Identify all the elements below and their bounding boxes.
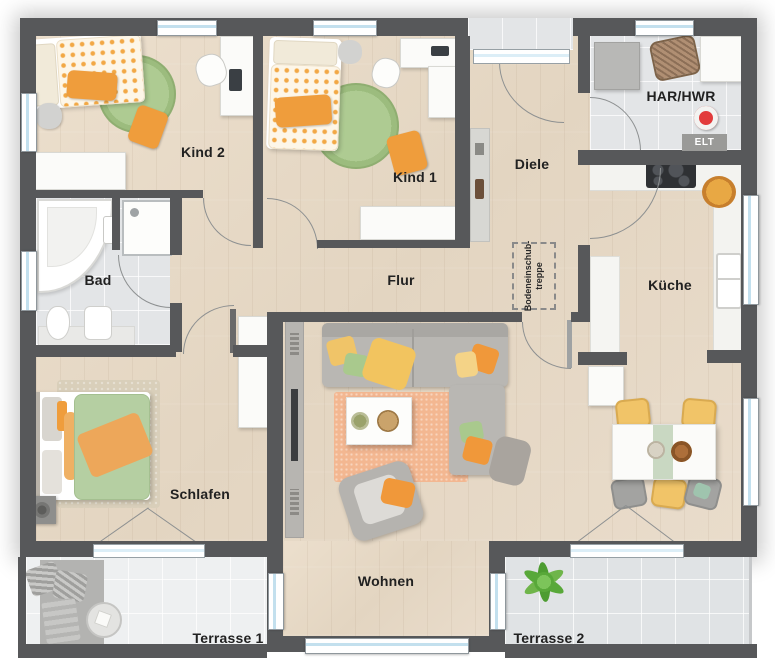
- decor: [94, 610, 112, 628]
- wall: [267, 312, 283, 541]
- monitor: [431, 46, 449, 56]
- wall: [233, 345, 267, 357]
- washing-machine: [594, 42, 640, 90]
- room-label-wohnen: Wohnen: [358, 573, 414, 589]
- room-label-diele: Diele: [515, 156, 549, 172]
- wardrobe-kind2: [28, 152, 126, 190]
- elt-panel: ELT: [682, 134, 727, 151]
- toilet: [46, 306, 70, 340]
- decor: [475, 143, 484, 155]
- room-label-kind1: Kind 1: [393, 169, 437, 185]
- window: [313, 20, 377, 36]
- wall: [267, 312, 522, 322]
- laptop: [229, 69, 242, 91]
- dining-chair: [610, 475, 649, 510]
- plant-center: [534, 572, 554, 592]
- elt-label: ELT: [695, 137, 715, 148]
- bucket: [694, 106, 718, 130]
- flowers: [647, 441, 665, 459]
- books: [290, 333, 299, 355]
- bowl: [671, 441, 692, 462]
- plant: [351, 412, 369, 430]
- wall: [18, 557, 26, 648]
- side-table: [338, 40, 362, 64]
- towel: [41, 598, 81, 644]
- desk-kind1: [400, 38, 457, 68]
- attic-stair-line2: treppe: [534, 241, 545, 312]
- wall: [707, 350, 741, 363]
- room-label-kind2: Kind 2: [181, 144, 225, 160]
- floor-porch: [468, 18, 573, 50]
- room-label-terrasse2: Terrasse 2: [513, 630, 584, 646]
- window: [490, 573, 506, 630]
- wall: [20, 18, 468, 36]
- terrace-door: [93, 544, 205, 558]
- wall: [253, 36, 263, 248]
- wall: [18, 644, 267, 658]
- pillow-yellow: [454, 351, 478, 379]
- bed-kind1: [266, 37, 342, 151]
- fruit-bowl: [702, 176, 736, 208]
- window: [635, 20, 694, 36]
- dresser-kind1: [360, 206, 457, 240]
- room-label-har-hwr: HAR/HWR: [646, 88, 715, 104]
- wall: [36, 190, 203, 198]
- floor-plan: Bodeneinschub- treppe: [0, 0, 775, 671]
- bidet: [84, 306, 112, 340]
- dining-chair: [650, 476, 688, 510]
- terrace-plant: [518, 556, 570, 608]
- wall: [20, 345, 176, 357]
- wall: [505, 644, 757, 658]
- window: [21, 93, 37, 152]
- window: [743, 398, 759, 506]
- attic-stair-label: Bodeneinschub- treppe: [523, 241, 545, 312]
- wall: [578, 150, 757, 165]
- window: [743, 195, 759, 305]
- door-leaf: [567, 320, 572, 368]
- window: [268, 573, 284, 630]
- bed-pillow: [273, 40, 338, 66]
- room-label-flur: Flur: [387, 272, 414, 288]
- kitchen-cabinet-column: [590, 256, 620, 358]
- shower: [122, 200, 172, 256]
- room-label-terrasse1: Terrasse 1: [192, 630, 263, 646]
- hall-sideboard: [470, 128, 490, 242]
- shower-drain: [130, 208, 139, 217]
- sink-divider: [718, 278, 740, 280]
- bed-kind2: [26, 32, 146, 110]
- room-label-kueche: Küche: [648, 277, 692, 293]
- wall: [578, 18, 590, 93]
- window: [305, 638, 469, 654]
- bed-blanket: [66, 70, 118, 101]
- decor: [475, 179, 484, 199]
- tub-basin: [47, 207, 97, 267]
- wall: [317, 240, 455, 248]
- bed-master: [30, 392, 150, 500]
- wall: [578, 245, 590, 322]
- desk-return-kind1: [428, 66, 457, 118]
- wall: [112, 198, 120, 250]
- front-door: [473, 49, 570, 64]
- plant-pot: [34, 502, 50, 518]
- stool: [36, 103, 62, 129]
- books: [290, 489, 299, 515]
- sofa-back: [322, 323, 508, 337]
- coffee-table: [346, 397, 412, 445]
- dining-table: [612, 424, 716, 480]
- terrace-side-table: [86, 602, 122, 638]
- wall: [170, 198, 182, 255]
- room-label-schlafen: Schlafen: [170, 486, 230, 502]
- utility-cabinet: [700, 36, 742, 82]
- wall: [578, 352, 627, 365]
- wall: [455, 36, 470, 248]
- tv-shelf: [285, 318, 304, 538]
- tv: [291, 389, 298, 461]
- tray: [377, 410, 399, 432]
- window: [157, 20, 217, 36]
- bed-blanket: [274, 94, 332, 128]
- terrace-door: [570, 544, 684, 558]
- attic-stair-line1: Bodeneinschub-: [523, 241, 534, 312]
- room-label-bad: Bad: [84, 272, 111, 288]
- kitchen-sink: [716, 253, 742, 309]
- window: [21, 251, 37, 311]
- pillow: [42, 450, 62, 494]
